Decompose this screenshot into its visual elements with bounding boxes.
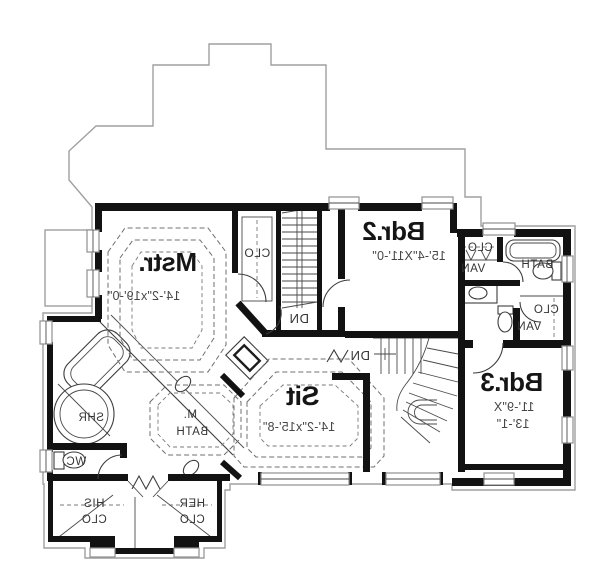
break-mark-closet-entry xyxy=(132,476,160,489)
room-bdr3: Bdr.3 xyxy=(481,367,544,397)
his-closet-b: CLO xyxy=(81,514,106,526)
hall-bath-tub xyxy=(506,240,560,261)
dim-bdr3-a: 11'-9"X xyxy=(493,400,534,414)
room-mbath-b: BATH xyxy=(176,426,208,438)
stair-label-dn-2: DN xyxy=(350,348,370,363)
main-curved-staircase xyxy=(373,338,458,443)
dim-sit: 14'-2"x15'-8" xyxy=(263,420,336,434)
room-sit: Sit xyxy=(286,381,320,411)
room-mbath-a: M. xyxy=(183,409,197,421)
window xyxy=(484,473,514,485)
vanity-counter-edge xyxy=(100,322,233,455)
window xyxy=(386,473,440,485)
window xyxy=(562,256,573,282)
wc-label: WC xyxy=(66,456,86,468)
window xyxy=(329,197,359,209)
bay-roof-below xyxy=(45,230,92,306)
vanity-bdr3: VAN xyxy=(517,321,542,333)
window xyxy=(90,548,115,557)
room-hallbath: BATH xyxy=(521,259,553,271)
vanity-hallbath: VAN xyxy=(461,263,486,275)
door-bdr2 xyxy=(323,280,350,307)
toilet-bdr3-bath xyxy=(498,306,513,332)
diagonal-wall-hall xyxy=(238,303,266,334)
window xyxy=(40,450,52,472)
shower-label: SHR xyxy=(78,412,104,424)
window xyxy=(40,321,52,344)
closet-hallbath: CLO xyxy=(467,242,492,254)
corner-fireplace xyxy=(226,337,268,379)
window xyxy=(562,417,573,443)
her-closet-b: CLO xyxy=(179,514,204,526)
window xyxy=(261,473,349,485)
closet-mstr: CLO xyxy=(244,246,270,260)
his-closet-a: HIS xyxy=(84,498,105,510)
floor-plan-canvas: Mstr.14'-2"x19'-0"CLOBdr.215'-4"X11'-0"C… xyxy=(0,0,600,568)
window xyxy=(174,548,199,557)
closet-bdr3: CLO xyxy=(533,304,558,316)
dim-bdr3-b: 13'-1" xyxy=(496,417,529,431)
window xyxy=(87,270,99,297)
window xyxy=(422,197,453,209)
window xyxy=(483,223,515,235)
her-closet-a: HER xyxy=(179,498,205,510)
back-staircase xyxy=(282,207,317,308)
master-sink-1 xyxy=(172,373,193,394)
floor-plan-drawing: Mstr.14'-2"x19'-0"CLOBdr.215'-4"X11'-0"C… xyxy=(0,0,600,568)
door-hall-bath xyxy=(503,262,523,282)
room-bdr2: Bdr.2 xyxy=(363,216,426,246)
room-mstr: Mstr. xyxy=(139,247,197,277)
break-mark-stair xyxy=(327,350,348,362)
stair-label-dn-1: DN xyxy=(289,311,309,326)
dim-bdr2: 15'-4"X11'-0" xyxy=(372,249,446,263)
window xyxy=(562,346,573,370)
window xyxy=(87,230,99,252)
vanity-sink-bdr3 xyxy=(469,287,487,299)
dim-mstr: 14'-2"x19'-0" xyxy=(108,289,181,303)
